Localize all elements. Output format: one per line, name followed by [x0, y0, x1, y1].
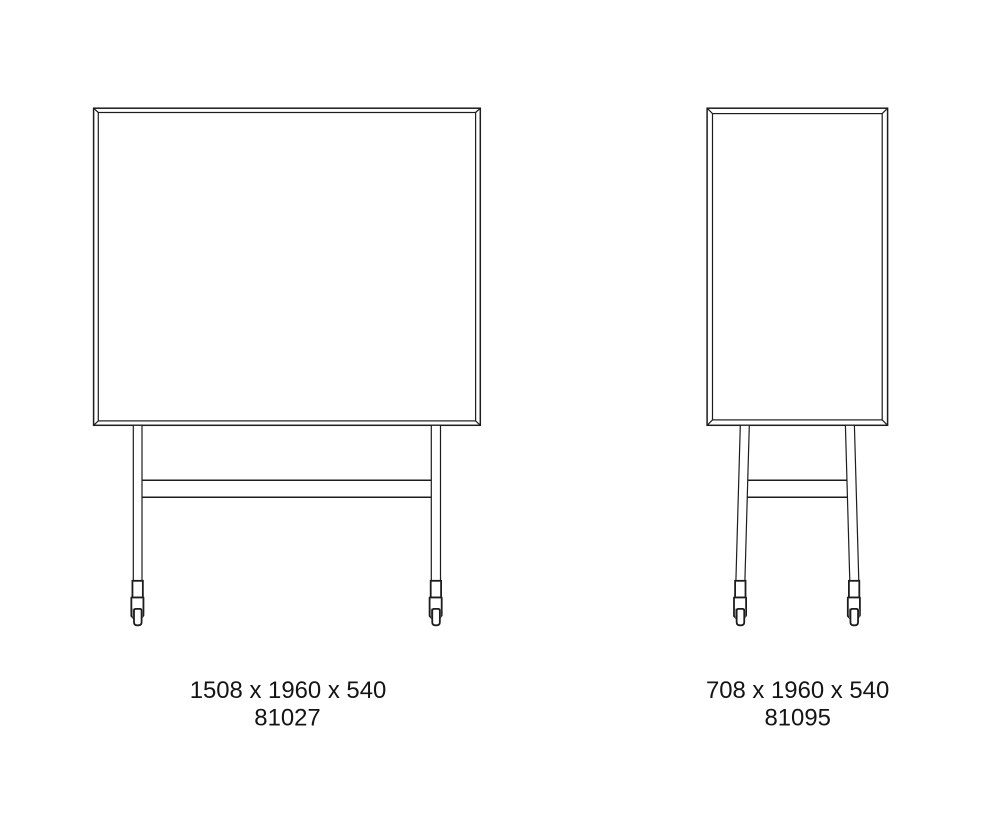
svg-text:1508 x 1960 x 540: 1508 x 1960 x 540 — [190, 677, 387, 704]
svg-text:708 x 1960 x 540: 708 x 1960 x 540 — [706, 677, 889, 704]
svg-text:81027: 81027 — [254, 705, 320, 732]
svg-text:81095: 81095 — [764, 705, 830, 732]
